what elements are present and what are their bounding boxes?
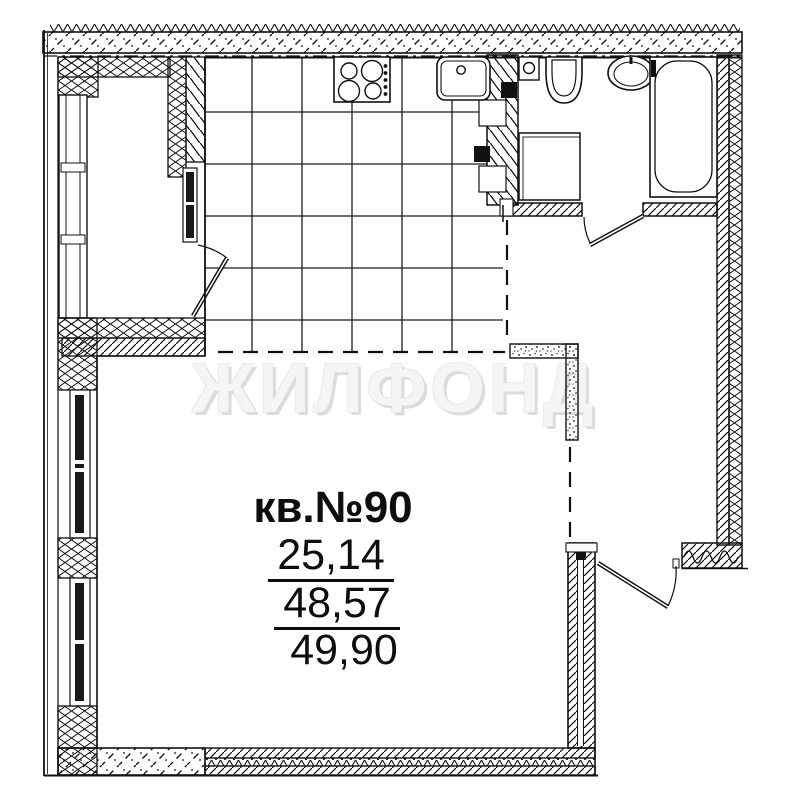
washing-machine-icon: [519, 57, 539, 80]
balcony: [58, 57, 227, 356]
balcony-door: [193, 245, 227, 316]
bottom-wall: [44, 748, 598, 776]
bathroom-wall-bottom: [500, 199, 717, 216]
entrance: [598, 543, 748, 607]
bathtub-icon: [650, 57, 717, 197]
living-window-2: [70, 578, 90, 706]
stove-icon: [334, 57, 390, 102]
right-wall: [717, 55, 742, 545]
bathroom: [500, 56, 717, 245]
usable-area-value: 48,57: [274, 582, 400, 630]
entrance-door: [598, 559, 679, 607]
apartment-number-label: кв.№90: [228, 486, 438, 530]
floor-plan-page: ЖИЛФОНД: [0, 0, 800, 800]
living-area-value: 25,14: [268, 534, 394, 582]
washbasin-icon: [608, 56, 654, 90]
living-window-1: [70, 390, 90, 538]
hall-partition-wall: [566, 543, 597, 748]
balcony-glazing: [59, 95, 87, 318]
balcony-window: [183, 168, 197, 242]
total-area-value: 49,90: [281, 629, 407, 672]
top-wall: [43, 24, 742, 58]
toilet-icon: [546, 57, 582, 103]
bathroom-door: [584, 216, 643, 245]
kitchen-sink-icon: [437, 57, 490, 100]
shower-tray-icon: [519, 133, 580, 200]
left-facade-lines: [44, 30, 58, 776]
floor-plan-drawing: [0, 0, 800, 800]
left-wall: [58, 318, 205, 748]
stipple-partition: [510, 344, 578, 440]
